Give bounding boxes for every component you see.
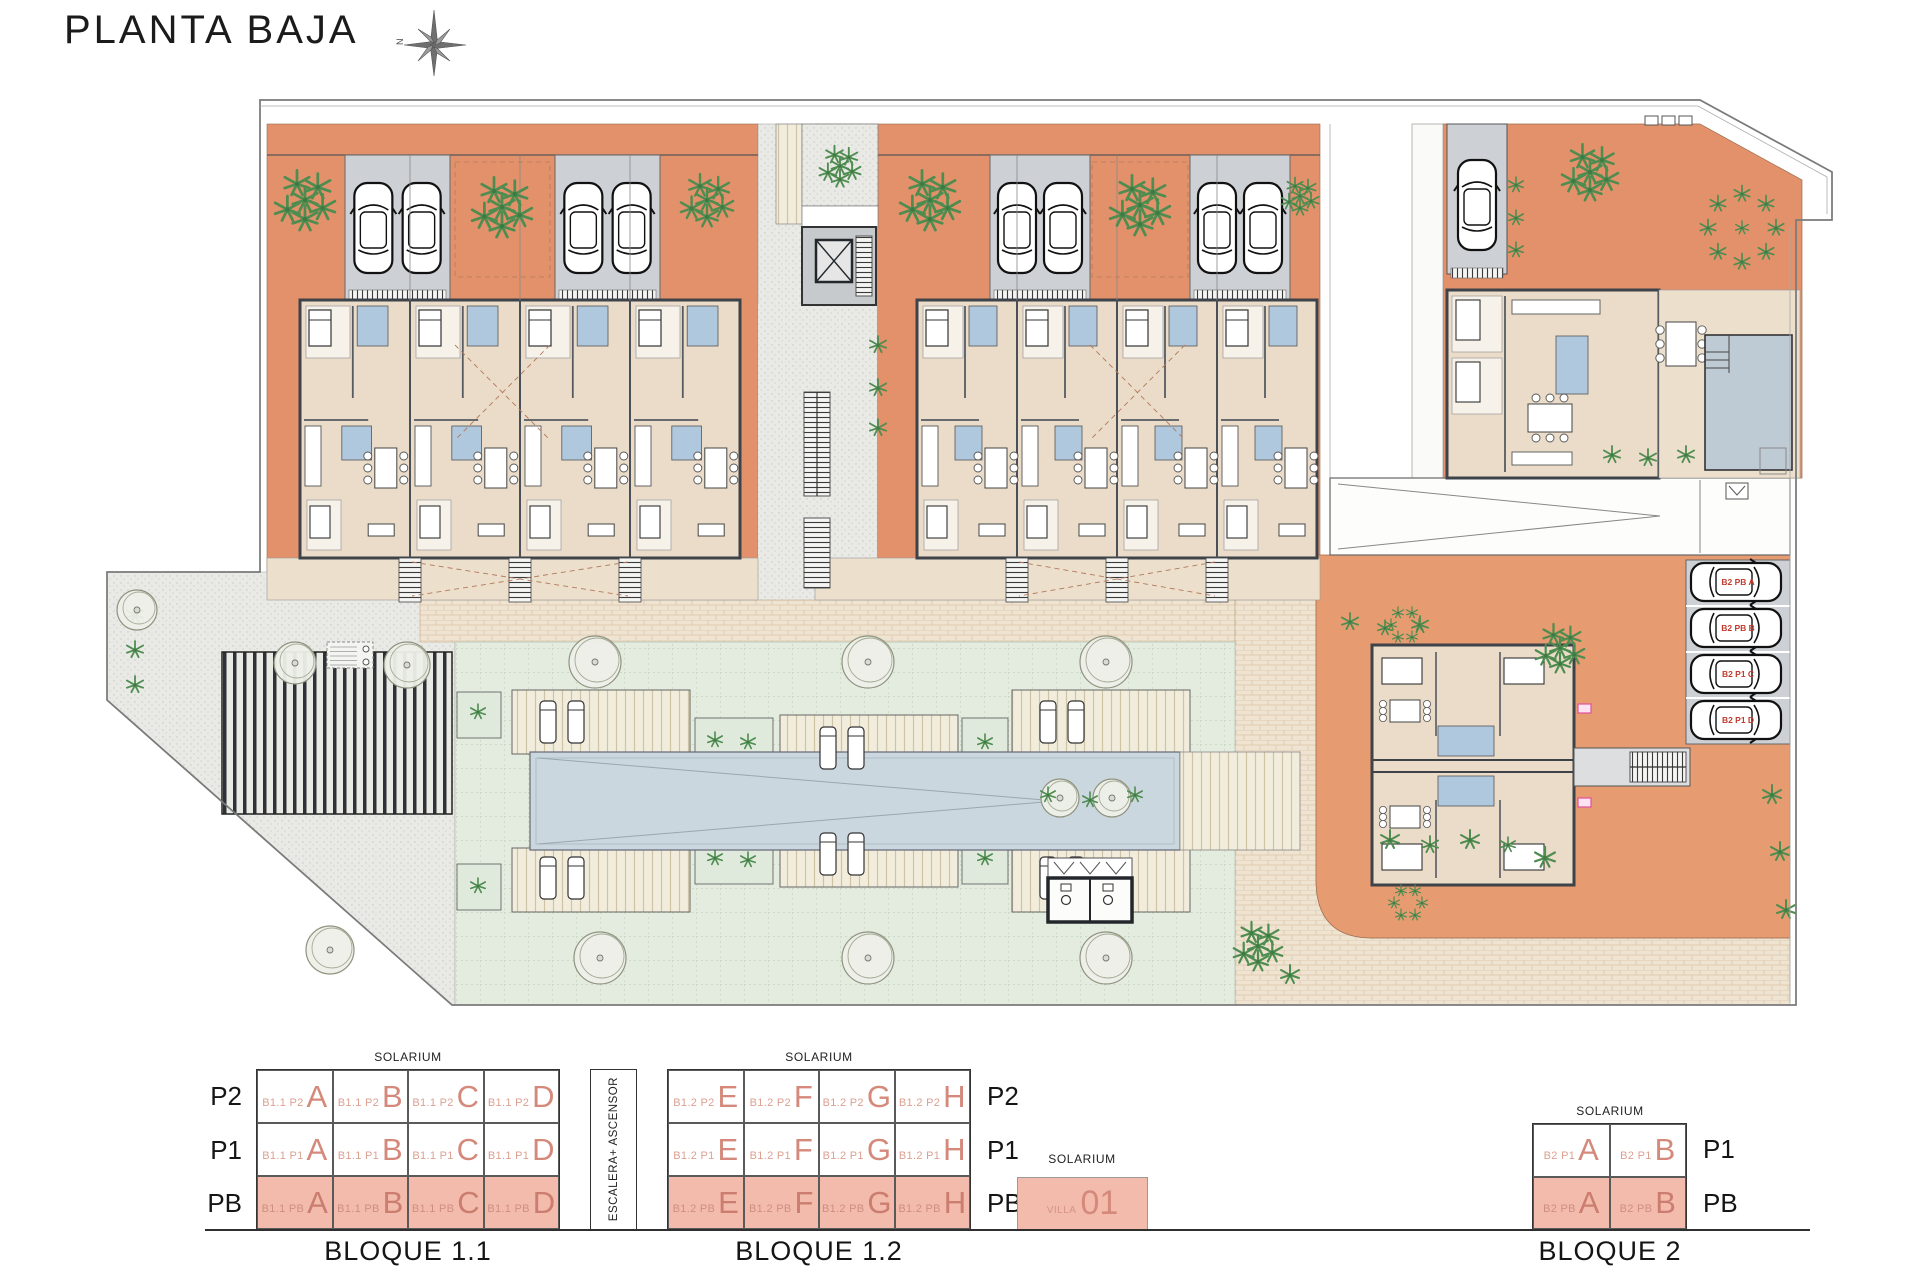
escalera-ascensor-label: ESCALERA+ ASCENSOR (608, 1077, 620, 1221)
solarium-label-b11: SOLARIUM (374, 1050, 441, 1064)
unit-cell-b12-p1-h: B1.2 P1H (895, 1123, 971, 1176)
floor-label-b12-p2: P2 (987, 1081, 1019, 1112)
villa-pool (1705, 335, 1792, 470)
solarium-label-b12: SOLARIUM (785, 1050, 852, 1064)
pink-unit-tag (1578, 704, 1591, 713)
pink-unit-tag (1578, 798, 1591, 807)
solarium-label-villa: SOLARIUM (1048, 1152, 1115, 1166)
floor-label-b11-pb: PB (178, 1188, 242, 1219)
floor-label-b11-p1: P1 (178, 1135, 242, 1166)
floor-label-b2-pb: PB (1703, 1188, 1738, 1219)
unit-cell-b12-p1-f: B1.2 P1F (744, 1123, 820, 1176)
parking-label-b2-p1-c: B2 P1 C (1722, 669, 1754, 679)
floor-plan-page: PLANTA BAJA N (0, 0, 1920, 1280)
unit-cell-b11-p1-d: B1.1 P1D (484, 1123, 560, 1176)
unit-cell-b12-p1-g: B1.2 P1G (819, 1123, 895, 1176)
unit-cell-b12-pb-g: B1.2 PBG (819, 1176, 895, 1229)
parking-label-b2-p1-d: B2 P1 D (1722, 715, 1754, 725)
unit-cell-b2-pb-b: B2 PBB (1610, 1177, 1687, 1230)
unit-cell-b11-p1-a: B1.1 P1A (257, 1123, 333, 1176)
unit-cell-b11-pb-a: B1.1 PBA (257, 1176, 333, 1229)
unit-cell-b11-p1-c: B1.1 P1C (408, 1123, 484, 1176)
solarium-label-b2: SOLARIUM (1576, 1104, 1643, 1118)
unit-cell-b12-pb-e: B1.2 PBE (668, 1176, 744, 1229)
escalera-ascensor-box: ESCALERA+ ASCENSOR (590, 1069, 637, 1230)
bloque-1-2-title: BLOQUE 1.2 (735, 1236, 903, 1267)
unit-cell-b12-p1-e: B1.2 P1E (668, 1123, 744, 1176)
floor-label-b12-p1: P1 (987, 1135, 1019, 1166)
unit-cell-b11-p1-b: B1.1 P1B (333, 1123, 409, 1176)
unit-cell-b2-p1-b: B2 P1B (1610, 1124, 1687, 1177)
villa-label: VILLA (1047, 1205, 1077, 1216)
unit-matrix-bloque-1-1: B1.1 P2AB1.1 P2BB1.1 P2CB1.1 P2DB1.1 P1A… (256, 1069, 560, 1230)
unit-cell-b11-p2-d: B1.1 P2D (484, 1070, 560, 1123)
unit-matrix-bloque-2: B2 P1AB2 P1BB2 PBAB2 PBB (1532, 1123, 1687, 1230)
unit-cell-b12-pb-h: B1.2 PBH (895, 1176, 971, 1229)
unit-cell-b12-pb-f: B1.2 PBF (744, 1176, 820, 1229)
unit-cell-b11-pb-b: B1.1 PBB (333, 1176, 409, 1229)
bloque-2-title: BLOQUE 2 (1538, 1236, 1681, 1267)
parking-label-b2-pb-a: B2 PB A (1721, 577, 1754, 587)
unit-cell-b12-p2-f: B1.2 P2F (744, 1070, 820, 1123)
unit-cell-b11-p2-b: B1.1 P2B (333, 1070, 409, 1123)
unit-cell-b11-p2-a: B1.1 P2A (257, 1070, 333, 1123)
villa-01-block: VILLA 01 (1017, 1177, 1148, 1230)
unit-cell-b11-pb-c: B1.1 PBC (408, 1176, 484, 1229)
bloque-1-1-title: BLOQUE 1.1 (324, 1236, 492, 1267)
floor-label-b2-p1: P1 (1703, 1134, 1735, 1165)
unit-cell-b11-pb-d: B1.1 PBD (484, 1176, 560, 1229)
unit-cell-b12-p2-e: B1.2 P2E (668, 1070, 744, 1123)
villa-number: 01 (1080, 1184, 1118, 1223)
floor-label-b11-p2: P2 (178, 1081, 242, 1112)
ground-line (205, 1229, 1810, 1231)
parking-label-b2-pb-b: B2 PB B (1721, 623, 1755, 633)
unit-cell-b11-p2-c: B1.1 P2C (408, 1070, 484, 1123)
unit-cell-b12-p2-g: B1.2 P2G (819, 1070, 895, 1123)
unit-cell-b2-pb-a: B2 PBA (1533, 1177, 1610, 1230)
unit-cell-b12-p2-h: B1.2 P2H (895, 1070, 971, 1123)
unit-cell-b2-p1-a: B2 P1A (1533, 1124, 1610, 1177)
unit-matrix-bloque-1-2: B1.2 P2EB1.2 P2FB1.2 P2GB1.2 P2HB1.2 P1E… (667, 1069, 971, 1230)
